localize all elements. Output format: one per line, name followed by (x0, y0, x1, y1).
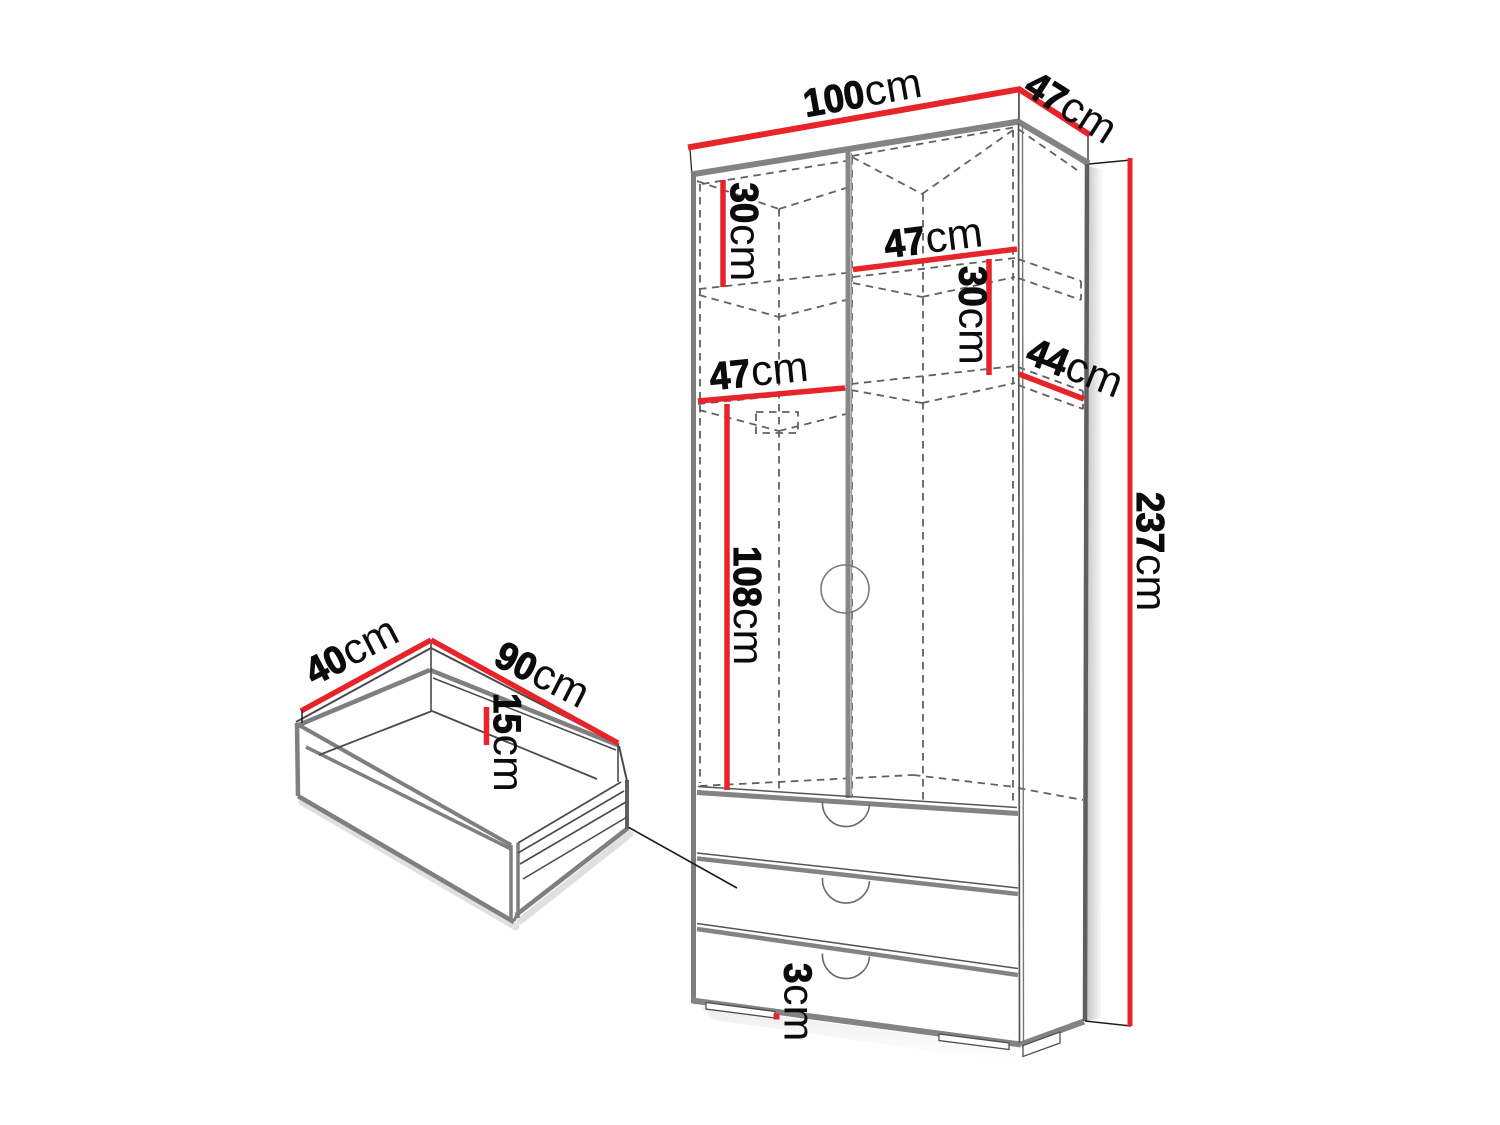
svg-text:3: 3 (775, 963, 818, 983)
svg-text:cm: cm (923, 208, 986, 263)
svg-text:cm: cm (775, 984, 823, 1041)
svg-text:30: 30 (950, 266, 993, 307)
svg-text:47: 47 (882, 219, 928, 267)
svg-text:237: 237 (1128, 492, 1171, 553)
svg-text:47: 47 (708, 352, 753, 399)
svg-text:cm: cm (860, 59, 925, 116)
svg-text:cm: cm (749, 343, 811, 396)
svg-text:30: 30 (722, 183, 765, 224)
svg-text:cm: cm (484, 735, 532, 792)
svg-text:cm: cm (1127, 554, 1175, 611)
svg-text:cm: cm (721, 224, 769, 281)
svg-text:cm: cm (724, 608, 772, 665)
svg-text:108: 108 (725, 546, 768, 607)
svg-text:15: 15 (485, 693, 528, 734)
svg-text:cm: cm (950, 308, 998, 365)
